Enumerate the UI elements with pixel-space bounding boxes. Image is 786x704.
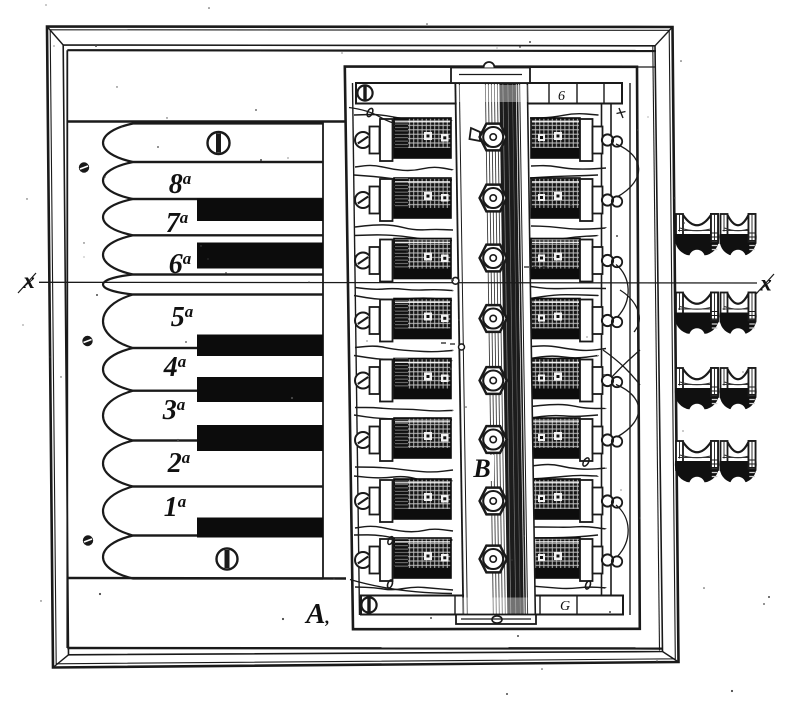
svg-text:6: 6 xyxy=(558,89,565,104)
svg-text:G: G xyxy=(560,599,570,614)
svg-text:B: B xyxy=(472,454,490,483)
